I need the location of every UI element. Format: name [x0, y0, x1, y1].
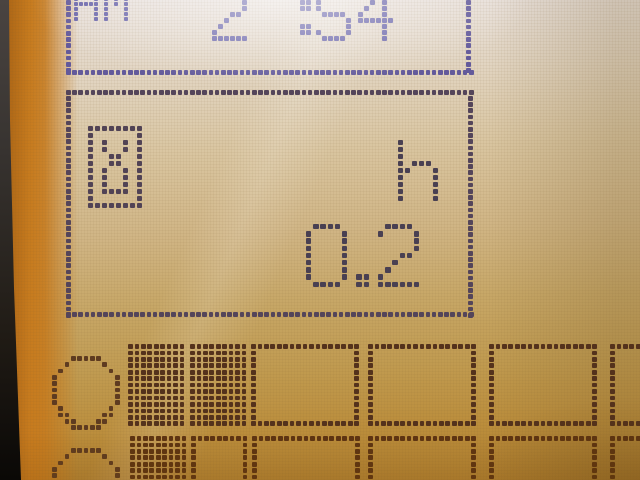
lcd-dot: [259, 436, 264, 441]
lcd-dot: [156, 462, 161, 467]
lcd-dot: [541, 436, 546, 441]
lcd-dot: [175, 449, 180, 454]
lcd-dot: [413, 436, 418, 441]
lcd-dot: [149, 462, 154, 467]
lcd-dot: [471, 436, 476, 441]
lcd-dot: [175, 475, 180, 480]
lcd-dot: [610, 443, 615, 448]
lcd-dot: [243, 455, 248, 460]
lcd-dot: [137, 462, 142, 467]
lcd-dot: [230, 436, 235, 441]
lcd-dot: [489, 475, 494, 480]
lcd-dot: [143, 475, 148, 480]
lcd-dot: [433, 436, 438, 441]
lcd-dot: [149, 436, 154, 441]
lcd-dot: [471, 468, 476, 473]
lcd-dot: [323, 436, 328, 441]
lcd-dot: [175, 468, 180, 473]
lcd-dot: [162, 468, 167, 473]
lcd-dot: [65, 454, 70, 459]
lcd-dot: [149, 455, 154, 460]
lcd-dot: [489, 436, 494, 441]
lcd-dot: [610, 449, 615, 454]
lcd-dot: [471, 462, 476, 467]
lcd-dot: [169, 443, 174, 448]
lcd-dot: [554, 436, 559, 441]
lcd-dot: [534, 436, 539, 441]
lcd-dot: [265, 436, 270, 441]
lcd-dot: [284, 436, 289, 441]
lcd-dot: [458, 436, 463, 441]
lcd-dot: [162, 449, 167, 454]
lcd-dot: [191, 462, 196, 467]
lcd-dot: [162, 475, 167, 480]
lcd-dot: [252, 443, 257, 448]
lcd-dot: [592, 462, 597, 467]
lcd-dot: [368, 468, 373, 473]
lcd-dot: [336, 436, 341, 441]
lcd-dot: [84, 448, 89, 453]
lcd-dot: [252, 449, 257, 454]
lcd-dot: [143, 449, 148, 454]
lcd-dot: [471, 455, 476, 460]
lcd-dot: [236, 436, 241, 441]
lcd-dot: [368, 436, 373, 441]
lcd-dot: [592, 475, 597, 480]
lcd-dot: [592, 455, 597, 460]
lcd-dot: [130, 436, 135, 441]
lcd-dot: [191, 468, 196, 473]
lcd-dot: [156, 449, 161, 454]
lcd-dot: [252, 468, 257, 473]
lcd-dot: [592, 436, 597, 441]
lcd-dot: [252, 462, 257, 467]
lcd-dot: [420, 436, 425, 441]
lcd-dot: [566, 436, 571, 441]
lcd-dot: [182, 462, 187, 467]
lcd-dot: [407, 436, 412, 441]
lcd-dot: [368, 443, 373, 448]
lcd-dot: [115, 473, 120, 478]
lcd-dot: [130, 462, 135, 467]
lcd-dot: [130, 468, 135, 473]
lcd-dot: [182, 443, 187, 448]
lcd-dot: [162, 443, 167, 448]
lcd-dot: [149, 468, 154, 473]
lcd-dot: [204, 436, 209, 441]
lcd-dot: [243, 475, 248, 480]
lcd-dot: [115, 467, 120, 472]
lcd-dot: [355, 475, 360, 480]
lcd-dot: [243, 436, 248, 441]
lcd-dot: [355, 455, 360, 460]
lcd-dot: [182, 455, 187, 460]
lcd-dot: [58, 461, 63, 466]
lcd-dot: [617, 436, 622, 441]
lcd-dot: [191, 449, 196, 454]
lcd-dot: [355, 436, 360, 441]
lcd-dot: [592, 443, 597, 448]
lcd-dot: [355, 449, 360, 454]
lcd-dot: [149, 443, 154, 448]
lcd-dot: [198, 436, 203, 441]
lcd-dot: [162, 462, 167, 467]
lcd-dot: [191, 475, 196, 480]
lcd-dot: [252, 475, 257, 480]
lcd-dot: [471, 443, 476, 448]
lcd-dot: [217, 436, 222, 441]
lcd-dot: [355, 462, 360, 467]
lcd-dot: [182, 449, 187, 454]
lcd-dot: [278, 436, 283, 441]
lcd-dot: [182, 468, 187, 473]
lcd-dot: [375, 436, 380, 441]
lcd-dot: [252, 455, 257, 460]
machine-lcd-display: [0, 0, 640, 480]
lcd-dot: [77, 448, 82, 453]
lcd-dot: [368, 449, 373, 454]
lcd-dot: [102, 454, 107, 459]
lcd-dot: [156, 468, 161, 473]
lcd-dot: [156, 455, 161, 460]
lcd-dot: [223, 436, 228, 441]
lcd-dot: [387, 436, 392, 441]
lcd-dot: [137, 455, 142, 460]
lcd-dot: [143, 443, 148, 448]
lcd-dot: [502, 436, 507, 441]
lcd-dot: [489, 455, 494, 460]
lcd-dot: [137, 436, 142, 441]
lcd-dot: [182, 475, 187, 480]
lcd-dot: [291, 436, 296, 441]
lcd-dot: [573, 436, 578, 441]
lcd-dot: [426, 436, 431, 441]
lcd-dot: [169, 436, 174, 441]
lcd-dot: [381, 436, 386, 441]
lcd-dot: [149, 475, 154, 480]
lcd-dot: [471, 449, 476, 454]
lcd-dot: [489, 443, 494, 448]
lcd-dot: [52, 467, 57, 472]
lcd-dot: [508, 436, 513, 441]
lcd-dot: [329, 436, 334, 441]
lcd-dot: [586, 436, 591, 441]
lcd-dot: [629, 436, 634, 441]
lcd-dot: [175, 443, 180, 448]
lcd-dot: [191, 436, 196, 441]
lcd-dot: [368, 462, 373, 467]
lcd-dot: [143, 462, 148, 467]
lcd-dot: [243, 468, 248, 473]
lcd-dot: [445, 436, 450, 441]
lcd-dot: [610, 455, 615, 460]
lcd-dot: [130, 455, 135, 460]
lcd-dot: [130, 449, 135, 454]
lcd-dot: [210, 436, 215, 441]
lcd-dot: [137, 449, 142, 454]
lcd-dot: [162, 436, 167, 441]
lcd-dot: [547, 436, 552, 441]
lcd-dot: [489, 468, 494, 473]
lcd-dot: [452, 436, 457, 441]
lcd-dot: [175, 436, 180, 441]
secondary-gauge-row: [0, 0, 640, 480]
lcd-dot: [52, 473, 57, 478]
lcd-dot: [109, 461, 114, 466]
lcd-dot: [96, 448, 101, 453]
lcd-dot: [528, 436, 533, 441]
lcd-dot: [175, 462, 180, 467]
lcd-dot: [137, 443, 142, 448]
lcd-dot: [623, 436, 628, 441]
lcd-dot: [182, 436, 187, 441]
lcd-dot: [156, 436, 161, 441]
lcd-dot: [162, 455, 167, 460]
lcd-dot: [400, 436, 405, 441]
lcd-dot: [304, 436, 309, 441]
lcd-dot: [191, 455, 196, 460]
lcd-dot: [156, 443, 161, 448]
lcd-dot: [130, 443, 135, 448]
lcd-dot: [579, 436, 584, 441]
lcd-dot: [130, 475, 135, 480]
lcd-dot: [243, 443, 248, 448]
lcd-dot: [252, 436, 257, 441]
lcd-dot: [169, 449, 174, 454]
lcd-dot: [560, 436, 565, 441]
lcd-dot: [175, 455, 180, 460]
lcd-dot: [143, 455, 148, 460]
lcd-dot: [90, 448, 95, 453]
lcd-dot: [169, 468, 174, 473]
lcd-dot: [149, 449, 154, 454]
lcd-dot: [191, 443, 196, 448]
lcd-dot: [592, 449, 597, 454]
lcd-dot: [349, 436, 354, 441]
lcd-dot: [71, 448, 76, 453]
lcd-dot: [355, 468, 360, 473]
lcd-dot: [610, 436, 615, 441]
lcd-dot: [169, 455, 174, 460]
lcd-dot: [465, 436, 470, 441]
lcd-dot: [317, 436, 322, 441]
lcd-dot: [137, 468, 142, 473]
lcd-dot: [137, 475, 142, 480]
lcd-dot: [610, 475, 615, 480]
lcd-dot: [143, 468, 148, 473]
lcd-dot: [243, 449, 248, 454]
lcd-dot: [521, 436, 526, 441]
lcd-dot: [610, 468, 615, 473]
lcd-dot: [310, 436, 315, 441]
lcd-dot: [243, 462, 248, 467]
lcd-dot: [394, 436, 399, 441]
lcd-dot: [169, 462, 174, 467]
lcd-dot: [143, 436, 148, 441]
lcd-dot: [342, 436, 347, 441]
lcd-dot: [471, 475, 476, 480]
lcd-dot: [489, 449, 494, 454]
lcd-dot: [156, 475, 161, 480]
lcd-dot: [496, 436, 501, 441]
lcd-dot: [636, 436, 640, 441]
lcd-dot: [169, 475, 174, 480]
lcd-dot: [515, 436, 520, 441]
lcd-dot: [368, 455, 373, 460]
lcd-dot: [368, 475, 373, 480]
lcd-dot: [592, 468, 597, 473]
lcd-dot: [297, 436, 302, 441]
lcd-dot: [439, 436, 444, 441]
lcd-dot: [610, 462, 615, 467]
lcd-dot: [355, 443, 360, 448]
lcd-dot: [489, 462, 494, 467]
lcd-dot: [271, 436, 276, 441]
